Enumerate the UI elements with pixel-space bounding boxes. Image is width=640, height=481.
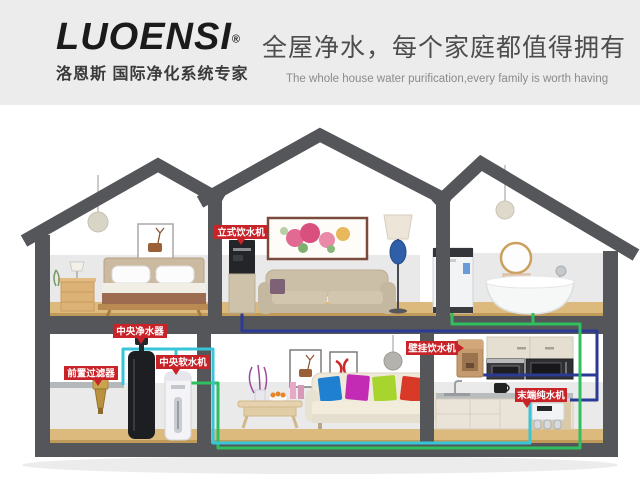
svg-text:壁挂饮水机: 壁挂饮水机 <box>408 343 456 355</box>
flower-painting <box>268 218 367 259</box>
poster: LUOENSI® 洛恩斯 国际净化系统专家 全屋净水，每个家庭都值得拥有 The… <box>0 0 640 481</box>
svg-text:立式饮水机: 立式饮水机 <box>217 227 265 239</box>
cream-sofa <box>305 373 438 429</box>
ro-unit <box>532 403 564 429</box>
blue-pillow <box>318 376 343 403</box>
brand-name: LUOENSI <box>56 16 232 58</box>
label-wall-dispenser: 壁挂饮水机 <box>406 341 464 355</box>
kettle <box>494 383 507 393</box>
svg-text:前置过滤器: 前置过滤器 <box>67 368 115 380</box>
registered-mark: ® <box>232 34 240 46</box>
bedroom <box>54 175 210 319</box>
wall-dispenser <box>457 340 483 377</box>
central-purifier-tank <box>128 336 155 439</box>
water-softener-unit <box>165 372 191 440</box>
standing-dispenser <box>229 240 255 313</box>
slogan-en: The whole house water purification,every… <box>262 73 626 85</box>
left-wall <box>35 235 50 457</box>
upper-divider-left <box>208 195 222 316</box>
upper-cabinets <box>487 337 573 359</box>
svg-text:末端纯水机: 末端纯水机 <box>516 390 565 402</box>
brand-logo: LUOENSI® 洛恩斯 国际净化系统专家 <box>56 18 248 84</box>
right-wall <box>603 251 618 457</box>
header-banner: LUOENSI® 洛恩斯 国际净化系统专家 全屋净水，每个家庭都值得拥有 The… <box>0 0 640 105</box>
candle <box>298 385 304 399</box>
pendant-lamp <box>384 352 402 370</box>
house-cutaway-diagram: 立式饮水机 中央净水器 前置过滤器 中央软水机 壁挂饮水机 <box>0 105 640 481</box>
label-standing-dispenser: 立式饮水机 <box>214 225 268 245</box>
deer-picture <box>138 224 173 263</box>
slogan-block: 全屋净水，每个家庭都值得拥有 The whole house water pur… <box>262 28 626 85</box>
purple-pillow <box>270 279 285 294</box>
slogan-cn: 全屋净水，每个家庭都值得拥有 <box>262 28 626 64</box>
svg-text:中央净水器: 中央净水器 <box>116 326 164 338</box>
pendant-lamp <box>88 212 108 232</box>
right-roof <box>436 163 636 255</box>
candle <box>290 382 296 399</box>
beige-sofa <box>258 270 396 314</box>
center-roof <box>200 135 450 202</box>
green-pillow <box>372 375 397 402</box>
left-roof <box>24 165 222 241</box>
pendant-lamp <box>496 201 514 219</box>
svg-text:中央软水机: 中央软水机 <box>159 357 207 369</box>
upper-divider-right <box>436 200 450 316</box>
bottom-slab <box>35 443 618 457</box>
brand-subtitle: 洛恩斯 国际净化系统专家 <box>56 60 248 84</box>
bed <box>98 258 210 319</box>
label-central-purifier: 中央净水器 <box>113 324 167 344</box>
sink <box>444 393 470 396</box>
round-mirror <box>501 243 531 279</box>
ground-shadow <box>22 456 618 474</box>
main-water-pipe <box>38 382 124 388</box>
magenta-pillow <box>345 374 370 401</box>
table-lamp <box>70 262 84 271</box>
